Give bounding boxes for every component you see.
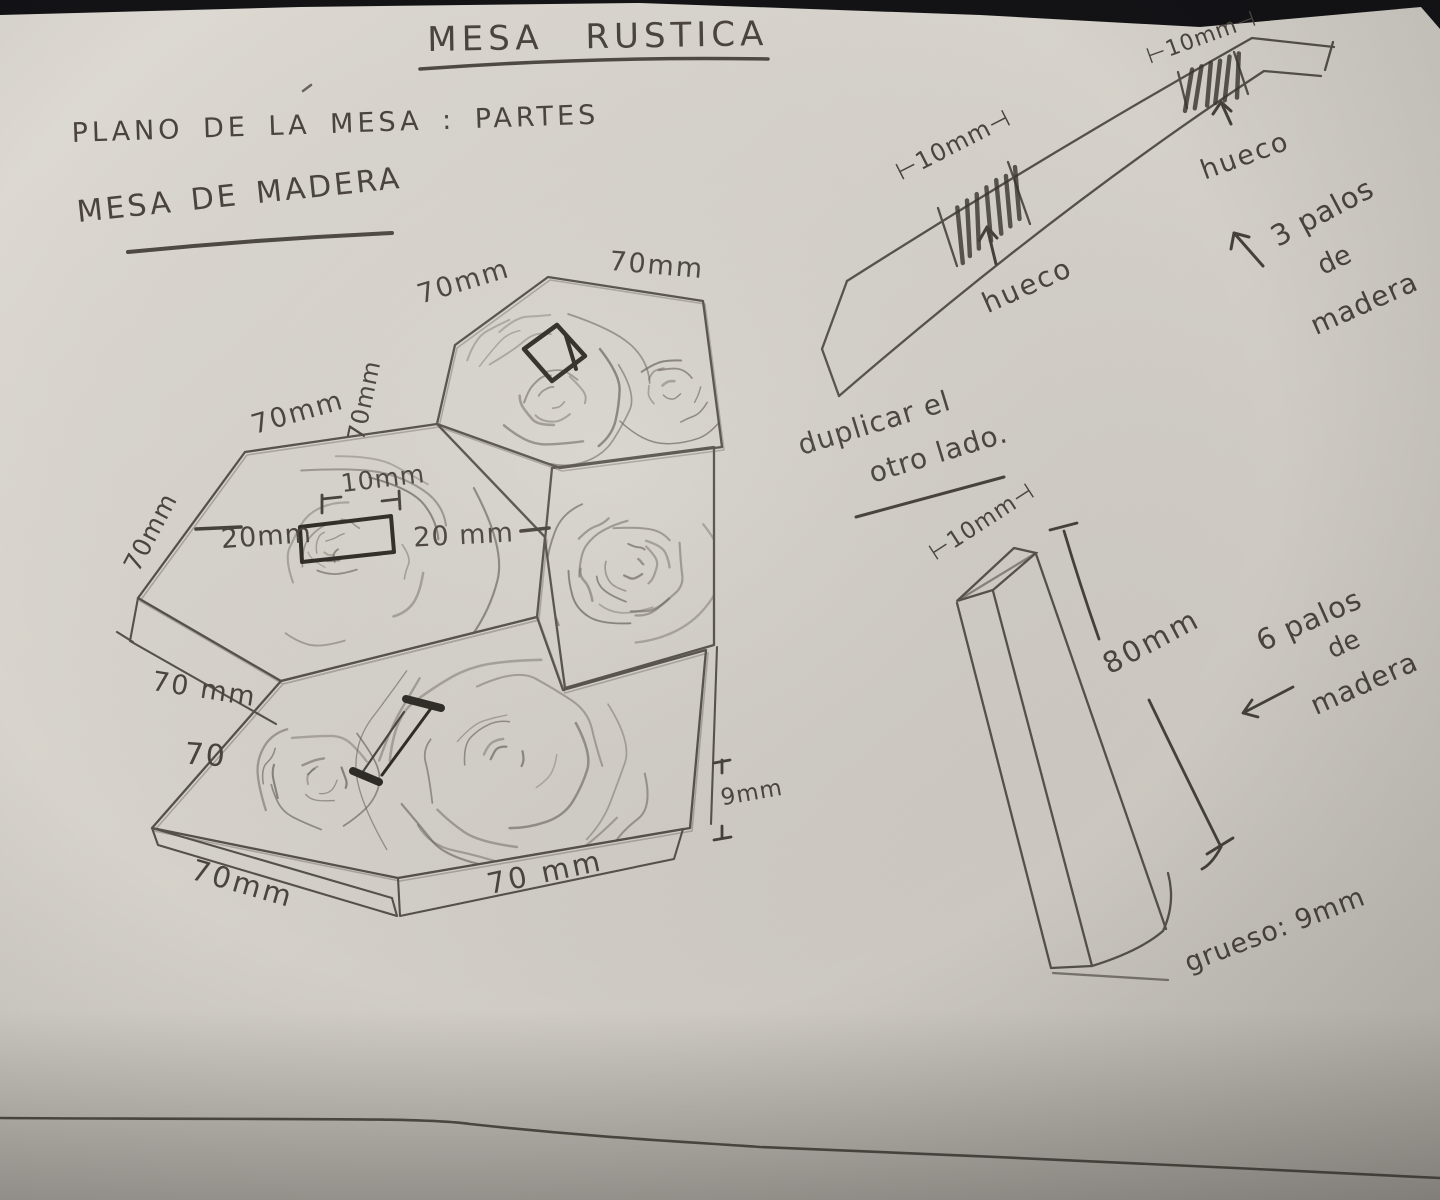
sketch-svg: MESA RUSTICA PLANO DE LA MESA : PARTES M…: [0, 0, 1440, 1200]
bottom-shadow: [0, 1010, 1440, 1200]
photo-of-paper-sketch: MESA RUSTICA PLANO DE LA MESA : PARTES M…: [0, 0, 1440, 1200]
